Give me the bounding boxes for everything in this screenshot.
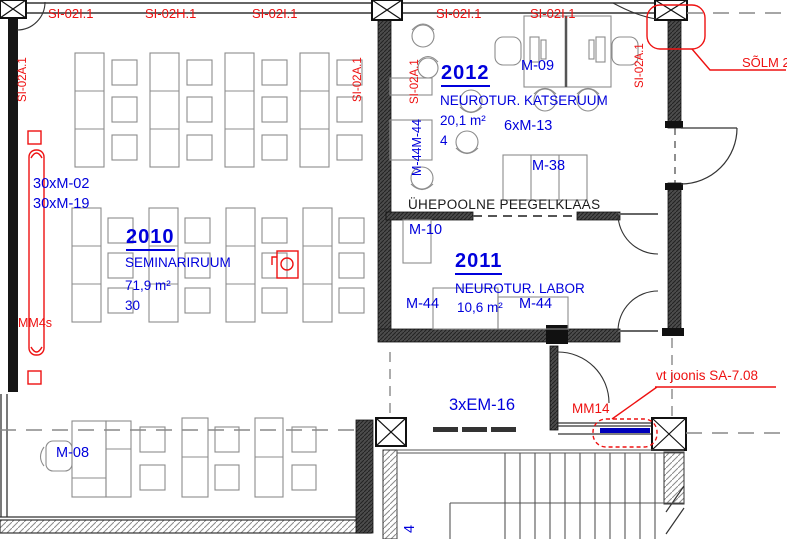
solm-label: SÕLM 2	[742, 56, 787, 70]
structural-columns	[0, 0, 687, 450]
door-room-2011-upper	[618, 214, 658, 254]
room-name-2010: SEMINARIRUUM	[125, 256, 231, 270]
furniture-code-m44-right: M-44	[519, 297, 552, 312]
floor-plan: SI-02I.1 SI-02H.1 SI-02I.1 SI-02I.1 SI-0…	[0, 0, 787, 539]
room-area-2011: 10,6 m²	[457, 301, 503, 315]
m08-label: M-08	[56, 446, 89, 461]
mm4s-label: MM4s	[18, 317, 52, 330]
room-number-2011: 2011	[455, 251, 502, 275]
mm14-element	[600, 428, 650, 433]
furniture-code-m09: M-09	[521, 59, 554, 74]
wall-code: SI-02I.1	[530, 7, 576, 21]
em16-label: 3xEM-16	[449, 397, 515, 414]
furniture-count-m19: 30xM-19	[33, 197, 89, 212]
mirror-glass-note: ÜHEPOOLNE PEEGELKLAAS	[408, 198, 600, 212]
room-name-2012: NEUROTUR. KATSERUUM	[440, 94, 608, 108]
wall-code: SI-02I.1	[436, 7, 482, 21]
wall-code-vertical: SI-02A.1	[634, 43, 646, 88]
room-name-2011: NEUROTUR. LABOR	[455, 282, 585, 296]
mm14-label: MM14	[572, 402, 610, 416]
door-room-2011-lower	[618, 291, 658, 331]
furniture-code-m38: M-38	[532, 159, 565, 174]
door-room-2012	[681, 128, 737, 184]
detail-ref-label: vt joonis SA-7.08	[656, 369, 758, 383]
wall-code: SI-02H.1	[145, 7, 196, 21]
furniture-code-m44-vertical: M-44M-44	[411, 119, 424, 176]
wall-code-vertical: SI-02A.1	[352, 57, 364, 102]
room-number-2010: 2010	[126, 227, 175, 251]
room-area-2010: 71,9 m²	[125, 279, 171, 293]
wall-code: SI-02I.1	[48, 7, 94, 21]
furniture-code-m44-left: M-44	[406, 297, 439, 312]
wall-code: SI-02I.1	[252, 7, 298, 21]
room-number-2012: 2012	[441, 63, 490, 87]
door-corridor	[558, 352, 609, 403]
plan-linework	[0, 0, 787, 539]
staircase	[397, 450, 684, 539]
room-capacity-2010: 30	[125, 299, 140, 313]
office-chair	[495, 37, 521, 65]
furniture-code-m10: M-10	[409, 223, 442, 238]
stair-mark-label: 4	[403, 525, 418, 533]
furniture-room-2010	[72, 53, 364, 322]
walls	[0, 0, 684, 539]
doors	[17, 2, 737, 403]
wall-code-vertical: SI-02A.1	[409, 59, 421, 104]
room-capacity-2012: 4	[440, 134, 448, 148]
furniture-code-6xm13: 6xM-13	[504, 119, 552, 134]
device-room-2010	[272, 251, 298, 278]
furniture-count-m02: 30xM-02	[33, 177, 89, 192]
room-area-2012: 20,1 m²	[440, 114, 486, 128]
wall-code-vertical: SI-02A.1	[17, 57, 29, 102]
